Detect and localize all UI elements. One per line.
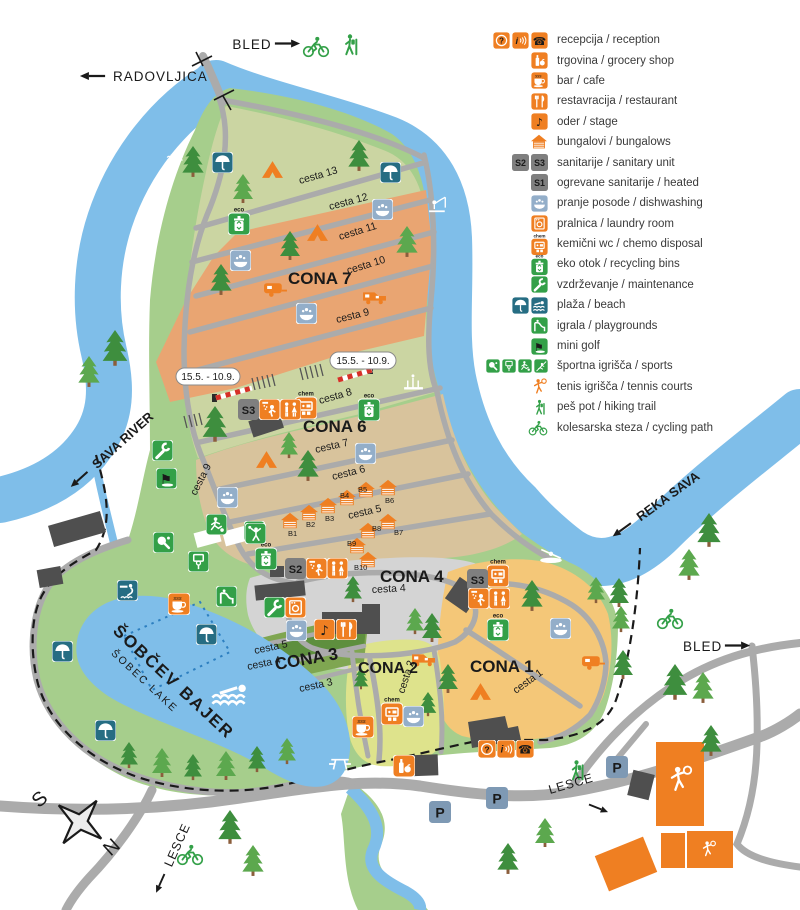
bungalow-label: B2	[306, 520, 315, 529]
legend-label: mini golf	[557, 340, 600, 352]
zone-label-cona6: CONA 6	[303, 417, 367, 436]
dishwashing-icon	[355, 443, 376, 464]
chemo-disposal-icon	[487, 560, 509, 587]
climbing-icon	[534, 358, 548, 374]
legend-item-grocery: trgovina / grocery shop	[486, 50, 798, 70]
legend-item-stage: oder / stage	[486, 112, 798, 132]
legend-item-restaurant: restavracija / restaurant	[486, 91, 798, 111]
bungalow-label: B4	[340, 491, 349, 500]
legend-item-sports: športna igrišča / sports	[486, 356, 798, 376]
table-tennis-icon	[486, 358, 500, 374]
direction-radovljica: RADOVLJICA	[113, 69, 208, 84]
legend-label: plaža / beach	[557, 299, 625, 311]
arrow-left-icon	[80, 72, 105, 80]
bungalow-label: B7	[394, 528, 403, 537]
direction-bled-right: BLED	[683, 639, 722, 654]
zone-label-cona7: CONA 7	[288, 269, 352, 288]
music-note-icon	[531, 113, 548, 130]
reception-speaker-icon	[497, 740, 515, 758]
bar-cafe-icon	[168, 593, 190, 615]
wc-icon	[489, 588, 510, 609]
chemo-disposal-icon	[531, 233, 548, 255]
legend-item-recycling: eko otok / recycling bins	[486, 254, 798, 274]
wc-icon	[280, 399, 301, 420]
cyclist-icon	[528, 419, 548, 436]
legend-label: pralnica / laundry room	[557, 218, 674, 230]
s2-sanitary-badge	[285, 558, 306, 579]
tree-icon	[242, 845, 263, 876]
legend-label: eko otok / recycling bins	[557, 258, 680, 270]
beach-umbrella-icon	[196, 624, 217, 645]
bungalow-label: B1	[288, 529, 297, 538]
arrow-right-icon	[275, 39, 300, 47]
s3-sanitary-badge	[238, 399, 259, 420]
season-label: 15.5. - 10.9.	[181, 372, 234, 383]
lesce-left-label: LESCE	[162, 821, 193, 869]
legend-item-beach: plaža / beach	[486, 295, 798, 315]
grocery-icon	[531, 52, 548, 69]
legend-label: recepcija / reception	[557, 34, 660, 46]
s1-badge-icon	[531, 174, 548, 191]
road-right-branch	[737, 646, 800, 867]
tennis-court-small	[661, 833, 685, 868]
tennis-player-icon	[531, 378, 548, 396]
beach-umbrella-icon	[95, 720, 116, 741]
legend-label: bar / cafe	[557, 75, 605, 87]
beach-umbrella-icon	[212, 152, 233, 173]
zone-label-cona1: CONA 1	[470, 657, 534, 676]
bungalow-label: B8	[372, 524, 381, 533]
parking-icon	[606, 756, 628, 778]
legend-label: igrala / playgrounds	[557, 320, 657, 332]
tree-icon	[218, 810, 241, 844]
tennis-court-small	[687, 831, 733, 868]
basketball-icon	[502, 358, 516, 374]
s2-badge-icon	[512, 154, 529, 171]
dishwashing-icon	[550, 618, 571, 639]
stage-icon	[314, 619, 335, 640]
restaurant-icon	[531, 93, 548, 110]
legend-item-sanitary: sanitarije / sanitary unit	[486, 152, 798, 172]
legend-label: vzdrževanje / maintenance	[557, 279, 694, 291]
legend-item-tennis: tenis igrišča / tennis courts	[486, 377, 798, 397]
eco-recycling-icon	[531, 253, 548, 275]
dishwashing-icon	[531, 195, 548, 212]
hiker-icon	[346, 34, 356, 54]
legend-item-maintenance: vzdrževanje / maintenance	[486, 275, 798, 295]
legend-label: oder / stage	[557, 116, 618, 128]
shower-icon	[468, 588, 489, 609]
bungalow-label: B6	[385, 496, 394, 505]
playground-icon	[216, 586, 237, 607]
legend-label: trgovina / grocery shop	[557, 55, 674, 67]
football-icon	[206, 514, 227, 535]
tree-icon	[497, 843, 518, 874]
legend-item-laundry: pralnica / laundry room	[486, 214, 798, 234]
legend-label: športna igrišča / sports	[557, 360, 673, 372]
orange-building	[595, 837, 657, 892]
minigolf-icon	[156, 468, 177, 489]
restaurant-icon	[336, 619, 357, 640]
dishwashing-icon	[403, 706, 424, 727]
tree-icon	[678, 549, 699, 580]
legend-item-playgrounds: igrala / playgrounds	[486, 315, 798, 335]
legend-item-bungalows: bungalovi / bungalows	[486, 132, 798, 152]
beach-umbrella-icon	[52, 641, 73, 662]
arrow-left-icon	[153, 873, 167, 894]
legend-item-chemo: kemični wc / chemo disposal	[486, 234, 798, 254]
laundry-icon	[285, 597, 306, 618]
legend-item-dishwashing: pranje posode / dishwashing	[486, 193, 798, 213]
beach-umbrella-icon	[380, 162, 401, 183]
hiker-icon	[531, 399, 548, 416]
phone-icon	[531, 32, 548, 49]
wrench-icon	[531, 276, 548, 293]
cyclist-icon	[304, 37, 329, 56]
legend-item-minigolf: mini golf	[486, 336, 798, 356]
slide-icon	[531, 317, 548, 334]
s3-sanitary-badge	[467, 569, 488, 590]
wc-icon	[327, 558, 348, 579]
s3-badge-icon	[531, 154, 548, 171]
tree-icon	[700, 725, 721, 756]
reception-phone-icon	[516, 740, 534, 758]
arrow-right-icon	[588, 801, 610, 815]
arrow-right-icon	[725, 641, 750, 649]
bungalow-label: B3	[325, 514, 334, 523]
legend-label: kolesarska steza / cycling path	[557, 422, 713, 434]
legend: recepcija / reception trgovina / grocery…	[486, 30, 798, 438]
bungalow-label: B10	[354, 563, 367, 572]
maintenance-icon	[264, 597, 285, 618]
dishwashing-icon	[286, 620, 307, 641]
legend-label: peš pot / hiking trail	[557, 401, 656, 413]
table-tennis-icon	[153, 532, 174, 553]
legend-label: restavracija / restaurant	[557, 95, 677, 107]
legend-item-cycling: kolesarska steza / cycling path	[486, 417, 798, 437]
legend-item-bar: bar / cafe	[486, 71, 798, 91]
grocery-shop-icon	[393, 755, 415, 777]
swimmer-icon	[531, 297, 548, 314]
legend-label: bungalovi / bungalows	[557, 136, 671, 148]
legend-label: tenis igrišča / tennis courts	[557, 381, 693, 393]
direction-bled-top: BLED	[232, 37, 271, 52]
question-icon	[493, 32, 510, 49]
shower-icon	[306, 558, 327, 579]
building	[48, 511, 106, 547]
golf-flag-icon	[531, 338, 548, 355]
volleyball-icon	[245, 523, 266, 544]
bungalow-label: B9	[347, 539, 356, 548]
speaker-icon	[512, 32, 529, 49]
bungalow-icon	[530, 134, 548, 150]
season-label: 15.5. - 10.9.	[336, 356, 389, 367]
road-label-cesta4: cesta 4	[372, 582, 407, 596]
basketball-icon	[188, 551, 209, 572]
shower-icon	[259, 399, 280, 420]
bungalow-label: B5	[358, 485, 367, 494]
legend-item-heated-sanitary: ogrevane sanitarije / heated	[486, 173, 798, 193]
football-icon	[518, 358, 532, 374]
cafe-icon	[531, 72, 548, 89]
legend-label: kemični wc / chemo disposal	[557, 238, 703, 250]
bar-cafe-icon	[352, 716, 374, 738]
parking-icon	[486, 787, 508, 809]
dishwashing-icon	[217, 487, 238, 508]
legend-label: pranje posode / dishwashing	[557, 197, 703, 209]
legend-label: sanitarije / sanitary unit	[557, 157, 675, 169]
legend-item-reception: recepcija / reception	[486, 30, 798, 50]
reception-info-icon	[478, 740, 496, 758]
cyclist-icon	[658, 609, 683, 628]
legend-item-hiking: peš pot / hiking trail	[486, 397, 798, 417]
umbrella-icon	[512, 297, 529, 314]
dishwashing-icon	[230, 250, 251, 271]
tree-icon	[535, 818, 555, 847]
dishwashing-icon	[296, 303, 317, 324]
compass: S N	[28, 784, 125, 860]
maintenance-icon	[152, 440, 173, 461]
campsite-map-page: chem eco ⚑	[0, 0, 800, 910]
dishwashing-icon	[372, 199, 393, 220]
legend-label: ogrevane sanitarije / heated	[557, 177, 699, 189]
parking-icon	[429, 801, 451, 823]
laundry-icon	[531, 215, 548, 232]
chemo-disposal-icon	[381, 698, 403, 725]
diving-board-icon	[117, 580, 138, 601]
